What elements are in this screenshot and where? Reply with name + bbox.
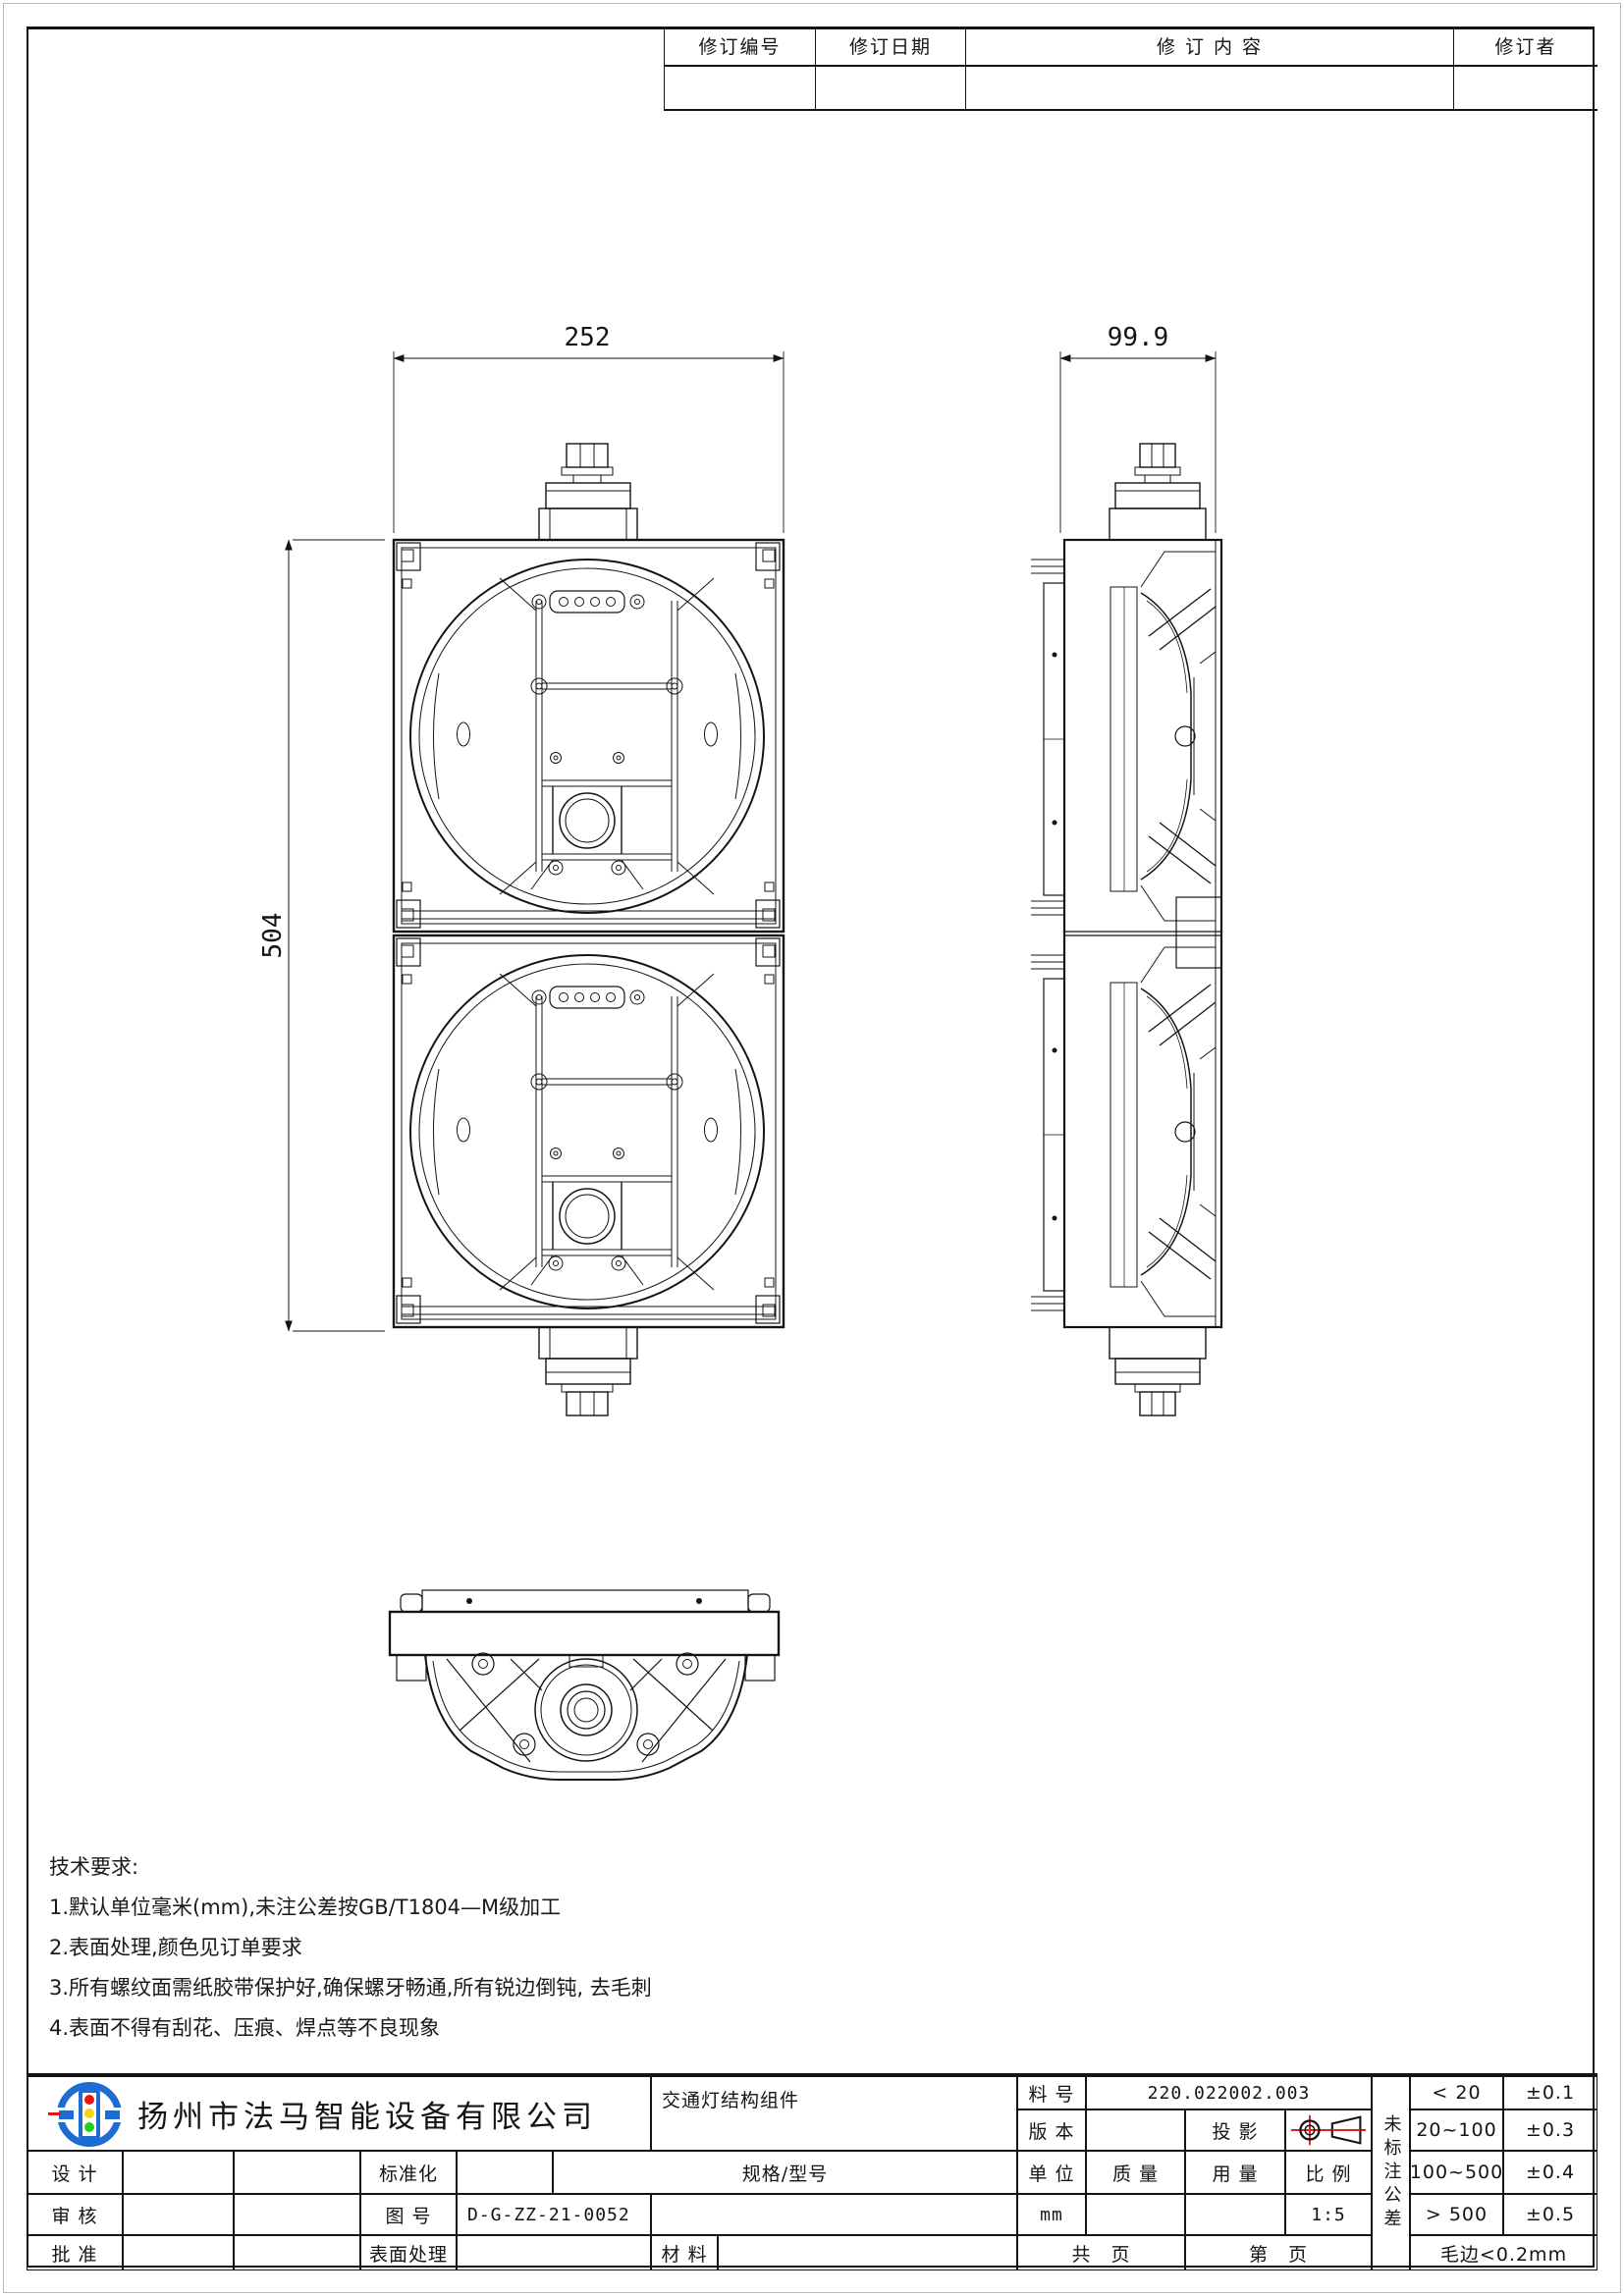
material-value-cell <box>718 2235 1017 2270</box>
material-label: 材 料 <box>651 2235 718 2270</box>
review-date-cell <box>234 2194 360 2235</box>
usage-label: 用 量 <box>1185 2151 1285 2194</box>
company-cell: 扬州市法马智能设备有限公司 <box>27 2076 651 2151</box>
tech-req-item: 2.表面处理,颜色见订单要求 <box>49 1928 652 1968</box>
burr-note: 毛边<0.2mm <box>1410 2235 1597 2270</box>
drawing-no-label: 图 号 <box>360 2194 457 2235</box>
front-view-drawing: 252 504 <box>258 323 784 1415</box>
first-angle-projection-icon <box>1287 2110 1370 2150</box>
company-name: 扬州市法马智能设备有限公司 <box>137 2092 597 2136</box>
unmarked-tolerance-label: 未标注公差 <box>1372 2076 1410 2270</box>
revision-header-date: 修订日期 <box>815 27 965 67</box>
drawing-no-value: D-G-ZZ-21-0052 <box>457 2194 651 2235</box>
drawing-sheet: 修订编号 修订日期 修 订 内 容 修订者 <box>0 0 1624 2296</box>
tolerance-value: ±0.1 <box>1503 2076 1597 2109</box>
side-view-drawing: 99.9 <box>1031 323 1221 1415</box>
revision-header-author: 修订者 <box>1453 27 1597 67</box>
standardization-label: 标准化 <box>360 2151 457 2194</box>
revision-cell-empty <box>815 67 965 111</box>
surface-treatment-label: 表面处理 <box>360 2235 457 2270</box>
unit-label: 单 位 <box>1017 2151 1086 2194</box>
review-name-cell <box>123 2194 234 2235</box>
mass-label: 质 量 <box>1086 2151 1185 2194</box>
unit-value: mm <box>1017 2194 1086 2235</box>
tolerance-value: ±0.3 <box>1503 2109 1597 2151</box>
surface-value-cell <box>457 2235 651 2270</box>
revision-cell-empty <box>965 67 1453 111</box>
scale-label: 比 例 <box>1285 2151 1372 2194</box>
design-name-cell <box>123 2151 234 2194</box>
approve-name-cell <box>123 2235 234 2270</box>
part-name: 交通灯结构组件 <box>651 2076 1017 2151</box>
spec-value-cell <box>651 2194 1017 2235</box>
tolerance-value: ±0.5 <box>1503 2194 1597 2235</box>
revision-cell-empty <box>1453 67 1597 111</box>
part-no-value: 220.022002.003 <box>1086 2076 1372 2109</box>
standardization-value-cell <box>457 2151 553 2194</box>
tech-req-item: 4.表面不得有刮花、压痕、焊点等不良现象 <box>49 2008 652 2049</box>
revision-table: 修订编号 修订日期 修 订 内 容 修订者 <box>664 27 1597 111</box>
tech-req-item: 1.默认单位毫米(mm),未注公差按GB/T1804—M级加工 <box>49 1888 652 1928</box>
revision-header-content: 修 订 内 容 <box>965 27 1453 67</box>
revision-cell-empty <box>664 67 815 111</box>
tolerance-range: 20~100 <box>1410 2109 1503 2151</box>
part-no-label: 料 号 <box>1017 2076 1086 2109</box>
bottom-view-drawing <box>390 1590 779 1780</box>
drawing-views: 252 504 <box>27 111 1597 2073</box>
tolerance-range: 100~500 <box>1410 2151 1503 2194</box>
review-label: 审 核 <box>27 2194 123 2235</box>
tech-req-item: 3.所有螺纹面需纸胶带保护好,确保螺牙畅通,所有锐边倒钝, 去毛刺 <box>49 1968 652 2008</box>
revision-header-number: 修订编号 <box>664 27 815 67</box>
side-width-dim-label: 99.9 <box>1108 323 1169 352</box>
technical-requirements: 技术要求: 1.默认单位毫米(mm),未注公差按GB/T1804—M级加工 2.… <box>49 1847 652 2049</box>
front-height-dim-label: 504 <box>258 913 288 959</box>
approve-label: 批 准 <box>27 2235 123 2270</box>
tolerance-range: > 500 <box>1410 2194 1503 2235</box>
projection-symbol-cell <box>1285 2109 1372 2151</box>
design-label: 设 计 <box>27 2151 123 2194</box>
version-label: 版 本 <box>1017 2109 1086 2151</box>
mass-value-cell <box>1086 2194 1185 2235</box>
design-date-cell <box>234 2151 360 2194</box>
spec-model-label: 规格/型号 <box>553 2151 1017 2194</box>
tolerance-value: ±0.4 <box>1503 2151 1597 2194</box>
usage-value-cell <box>1185 2194 1285 2235</box>
tolerance-range: < 20 <box>1410 2076 1503 2109</box>
company-logo-icon <box>57 2082 122 2147</box>
total-pages-label: 共 页 <box>1017 2235 1185 2270</box>
page-number-label: 第 页 <box>1185 2235 1372 2270</box>
title-block: 扬州市法马智能设备有限公司 交通灯结构组件 料 号 220.022002.003… <box>27 2073 1597 2268</box>
version-value <box>1086 2109 1185 2151</box>
approve-date-cell <box>234 2235 360 2270</box>
tech-req-title: 技术要求: <box>49 1847 652 1888</box>
front-width-dim-label: 252 <box>565 323 611 352</box>
scale-value: 1:5 <box>1285 2194 1372 2235</box>
projection-label: 投 影 <box>1185 2109 1285 2151</box>
